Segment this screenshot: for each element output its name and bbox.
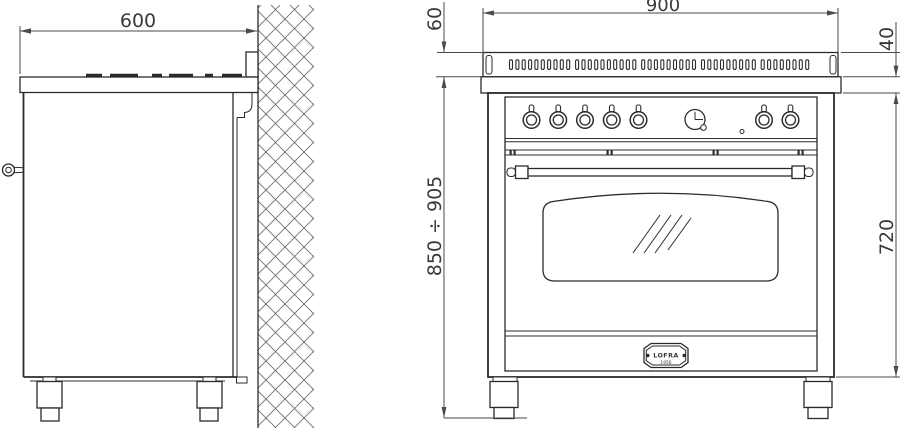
- vent-slot: [799, 60, 802, 70]
- vent-slot: [680, 60, 683, 70]
- vent-grille: [483, 53, 838, 77]
- handle-stem-bottom: [14, 172, 24, 173]
- vent-slot: [761, 60, 764, 70]
- hinge-mark: [510, 150, 512, 155]
- left-foot-upper: [490, 382, 518, 408]
- vent-end-cap-left: [486, 56, 492, 75]
- vent-slot: [510, 60, 513, 70]
- arrowhead-left: [20, 28, 31, 33]
- dim-850-905-label: 850 ÷ 905: [424, 176, 446, 277]
- vent-slot: [780, 60, 783, 70]
- front-view: 900: [424, 0, 900, 419]
- knob-pointer-nub: [609, 105, 614, 112]
- vent-slot: [614, 60, 617, 70]
- dim-720-label: 720: [876, 219, 898, 255]
- dimension-backguard-height: 60: [424, 2, 484, 77]
- hinge-mark: [611, 150, 613, 155]
- dimension-worktop-thickness: 40: [841, 22, 900, 93]
- badge-screw-left: [646, 354, 649, 357]
- vent-slot: [535, 60, 538, 70]
- oven-door-handle: [507, 166, 813, 179]
- vent-slot: [702, 60, 705, 70]
- vent-slot: [601, 60, 604, 70]
- vent-slot: [793, 60, 796, 70]
- hinge-mark: [514, 150, 516, 155]
- hinge-mark: [802, 150, 804, 155]
- vent-slot: [740, 60, 743, 70]
- vent-slot: [541, 60, 544, 70]
- vent-slot: [806, 60, 809, 70]
- knob-pointer-nub: [762, 105, 767, 112]
- arrowhead-right: [827, 10, 838, 15]
- brand-badge: LOFRA 1956: [644, 344, 688, 368]
- vent-slot: [620, 60, 623, 70]
- vent-slot: [516, 60, 519, 70]
- vent-slot: [626, 60, 629, 70]
- arrowhead-up: [442, 77, 447, 88]
- arrowhead-down: [442, 407, 447, 418]
- badge-year-text: 1956: [660, 360, 671, 366]
- knob-inner-disc: [634, 115, 644, 125]
- rear-foot-upper: [197, 382, 222, 409]
- vent-slot: [588, 60, 591, 70]
- cabinet-side: [24, 93, 253, 384]
- vent-slot: [642, 60, 645, 70]
- right-foot-upper: [804, 382, 832, 408]
- handle-collar-left: [516, 166, 529, 179]
- arrowhead-down: [442, 42, 447, 53]
- side-feet: [37, 377, 222, 421]
- worktop-edge: [481, 77, 841, 93]
- wall-hatch: [258, 5, 314, 428]
- rear-foot-tab: [203, 377, 216, 382]
- vent-slot: [661, 60, 664, 70]
- rear-foot-lower: [200, 408, 218, 421]
- vent-slot: [648, 60, 651, 70]
- front-foot-lower: [41, 408, 59, 421]
- handle-collar-right: [792, 166, 805, 179]
- vent-slot: [714, 60, 717, 70]
- wall-section: [258, 5, 314, 428]
- vent-slot: [595, 60, 598, 70]
- vent-slot: [633, 60, 636, 70]
- knob-pointer-nub: [583, 105, 588, 112]
- side-view: 600: [3, 5, 315, 428]
- handle-bar: [528, 169, 792, 177]
- vent-slot: [576, 60, 579, 70]
- vent-slot: [667, 60, 670, 70]
- cooktop-ledge-side: [20, 77, 258, 93]
- dimension-body-height: 720: [836, 93, 900, 377]
- vent-slot: [567, 60, 570, 70]
- arrowhead-down: [894, 366, 899, 377]
- badge-screw-right: [683, 354, 686, 357]
- dim-600-label: 600: [120, 10, 156, 32]
- arrowhead-up: [894, 93, 899, 104]
- indicator-light: [740, 130, 744, 134]
- vent-slot: [654, 60, 657, 70]
- front-feet: [490, 377, 832, 419]
- knob-inner-disc: [553, 115, 563, 125]
- rear-spacer-bracket: [237, 93, 252, 118]
- hinge-mark: [713, 150, 715, 155]
- door-handle-side: [3, 164, 24, 176]
- knob-pointer-nub: [556, 105, 561, 112]
- front-foot-upper: [37, 382, 62, 409]
- vent-slot: [548, 60, 551, 70]
- vent-slot: [554, 60, 557, 70]
- badge-brand-text: LOFRA: [653, 352, 679, 360]
- right-foot-lower: [808, 408, 828, 419]
- clock-knob: [701, 125, 707, 131]
- vent-slot: [746, 60, 749, 70]
- knob-inner-disc: [786, 115, 796, 125]
- vent-slot: [727, 60, 730, 70]
- arrowhead-down: [894, 66, 899, 77]
- vent-slot: [529, 60, 532, 70]
- handle-tip-left: [507, 168, 516, 177]
- knob-pointer-nub: [636, 105, 641, 112]
- cabinet-front: [488, 93, 834, 377]
- left-foot-lower: [494, 408, 514, 419]
- right-foot-tab: [806, 377, 830, 382]
- vent-slot: [752, 60, 755, 70]
- handle-stem-top: [14, 167, 24, 168]
- vent-slot: [787, 60, 790, 70]
- vent-slot: [708, 60, 711, 70]
- knob-pointer-nub: [788, 105, 793, 112]
- vent-slot: [582, 60, 585, 70]
- vent-slot: [693, 60, 696, 70]
- vent-slot: [686, 60, 689, 70]
- dim-60-label: 60: [424, 7, 446, 31]
- left-foot-tab: [493, 377, 517, 382]
- vent-slot: [607, 60, 610, 70]
- arrowhead-right: [246, 28, 257, 33]
- drawing-svg: 600: [0, 0, 900, 432]
- vent-slot: [674, 60, 677, 70]
- clock-timer: [685, 110, 706, 131]
- knob-pointer-nub: [529, 105, 534, 112]
- front-foot-tab: [43, 377, 56, 382]
- vent-slot: [774, 60, 777, 70]
- hinge-mark: [717, 150, 719, 155]
- handle-ring-outer: [3, 164, 15, 176]
- rear-bottom-lip: [237, 377, 248, 383]
- vent-slot: [560, 60, 563, 70]
- vent-slot: [522, 60, 525, 70]
- handle-tip-right: [805, 168, 814, 177]
- technical-drawing-canvas: 600: [0, 0, 900, 432]
- dim-40-label: 40: [876, 27, 898, 51]
- dim-900-label: 900: [646, 0, 680, 16]
- vent-slot: [733, 60, 736, 70]
- knob-inner-disc: [759, 115, 769, 125]
- backguard-side: [246, 52, 258, 77]
- dimension-depth: 600: [20, 10, 257, 74]
- vent-end-cap-right: [830, 56, 836, 75]
- hinge-mark: [607, 150, 609, 155]
- knob-inner-disc: [580, 115, 590, 125]
- arrowhead-left: [483, 10, 494, 15]
- vent-slot: [768, 60, 771, 70]
- dimension-width: 900: [483, 0, 838, 53]
- knob-inner-disc: [607, 115, 617, 125]
- vent-slot: [721, 60, 724, 70]
- hinge-mark: [798, 150, 800, 155]
- knob-inner-disc: [527, 115, 537, 125]
